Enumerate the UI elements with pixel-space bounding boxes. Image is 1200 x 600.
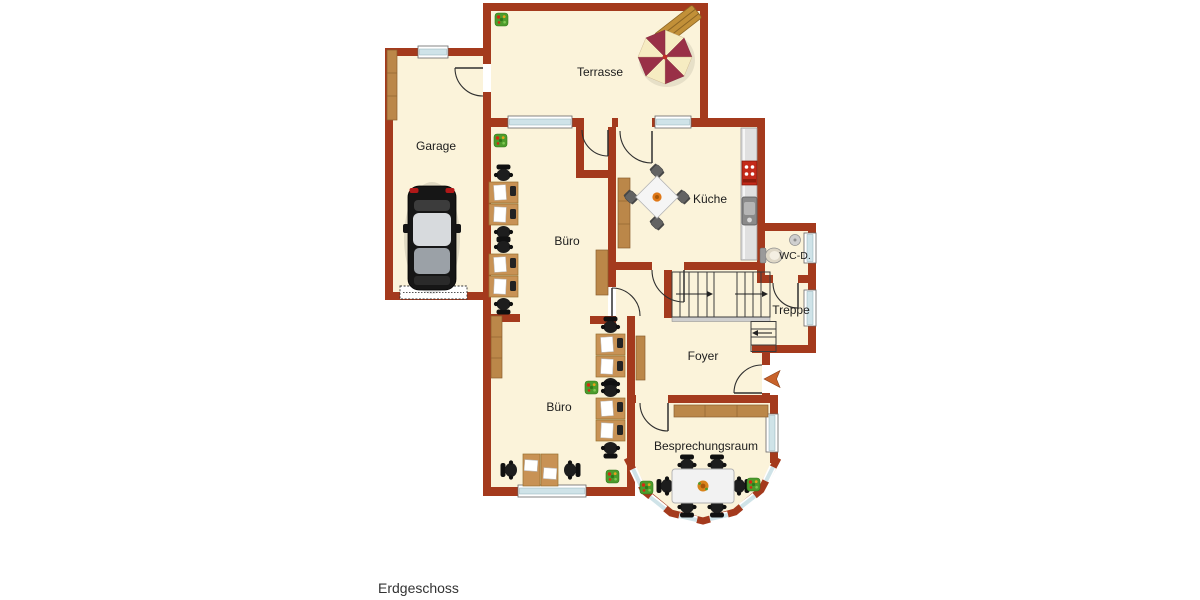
washbasin <box>790 235 801 246</box>
kitchen-cabinet <box>618 178 630 248</box>
car <box>403 182 461 294</box>
window <box>418 46 448 58</box>
label-treppe: Treppe <box>772 303 810 317</box>
label-wc: WC-D. <box>779 250 811 262</box>
office-cabinet <box>596 250 608 295</box>
label-kueche: Küche <box>693 192 727 206</box>
floorplan-erdgeschoss: Terrasse Garage Büro Küche WC-D. Treppe … <box>0 0 1200 600</box>
label-terrasse: Terrasse <box>577 65 623 79</box>
window <box>766 414 778 452</box>
label-garage: Garage <box>416 139 456 153</box>
stove <box>742 161 757 185</box>
foyer-cabinet <box>636 336 645 380</box>
floorplan-page: Terrasse Garage Büro Küche WC-D. Treppe … <box>0 0 1200 600</box>
sideboard <box>674 405 768 417</box>
entrance-arrow-icon <box>764 371 780 388</box>
window <box>655 116 691 128</box>
window <box>518 485 586 497</box>
label-buero-top: Büro <box>554 234 580 248</box>
sink <box>742 197 757 225</box>
kitchen-counter <box>741 128 757 260</box>
label-buero-bottom: Büro <box>546 400 572 414</box>
garage-cabinet <box>387 50 397 120</box>
label-besprechungsraum: Besprechungsraum <box>654 439 758 453</box>
floor-title: Erdgeschoss <box>378 580 459 596</box>
label-foyer: Foyer <box>688 349 719 363</box>
window <box>508 116 572 128</box>
office-cabinet <box>491 316 502 378</box>
